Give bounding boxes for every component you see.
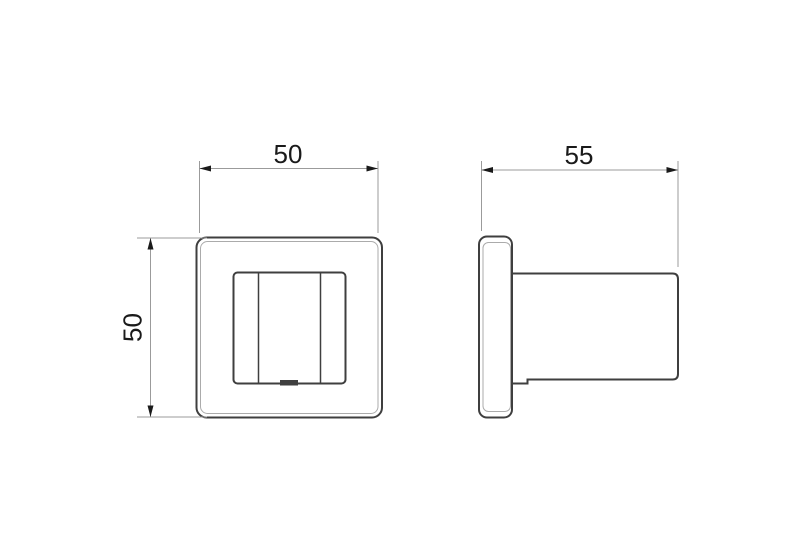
technical-drawing: 50 50 55 [0,0,800,559]
arrowhead-right-icon [667,167,679,173]
drawing-canvas: 50 50 55 [0,0,800,559]
front-plate-outline [197,238,383,418]
front-hook-tip-notch [281,381,298,386]
arrowhead-left-icon [200,166,212,172]
side-plate-edge-contour [483,243,511,412]
front-hook-body-outline [234,273,346,384]
side-depth-label: 55 [565,140,594,170]
side-plate-outline [479,237,512,418]
front-width-label: 50 [274,139,303,169]
front-view [197,238,383,418]
dimension-front-height: 50 [118,238,208,417]
front-plate-edge-contour [201,242,379,414]
arrowhead-down-icon [148,406,154,418]
side-arm-outline [512,274,678,384]
front-height-label: 50 [118,313,148,342]
dimension-front-width: 50 [200,139,379,233]
side-view [479,237,678,418]
arrowhead-up-icon [148,238,154,250]
arrowhead-right-icon [367,166,379,172]
arrowhead-left-icon [482,167,494,173]
